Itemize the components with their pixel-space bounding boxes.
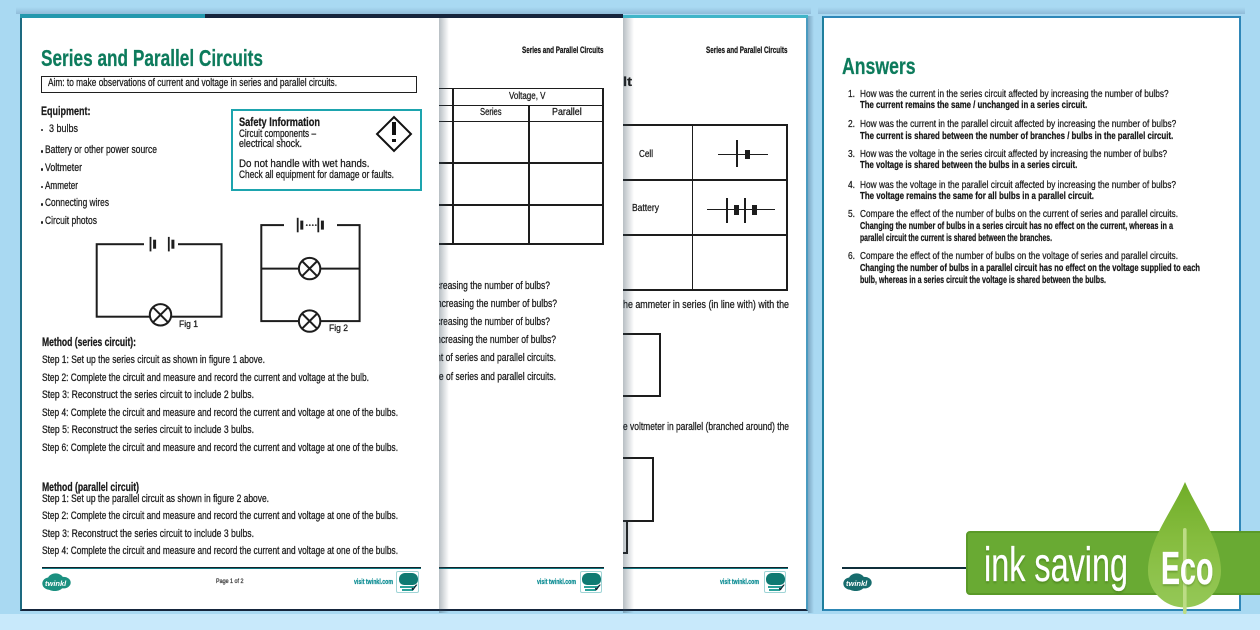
svg-text:twinkl: twinkl xyxy=(45,579,67,588)
svg-text:twinkl: twinkl xyxy=(846,579,868,588)
